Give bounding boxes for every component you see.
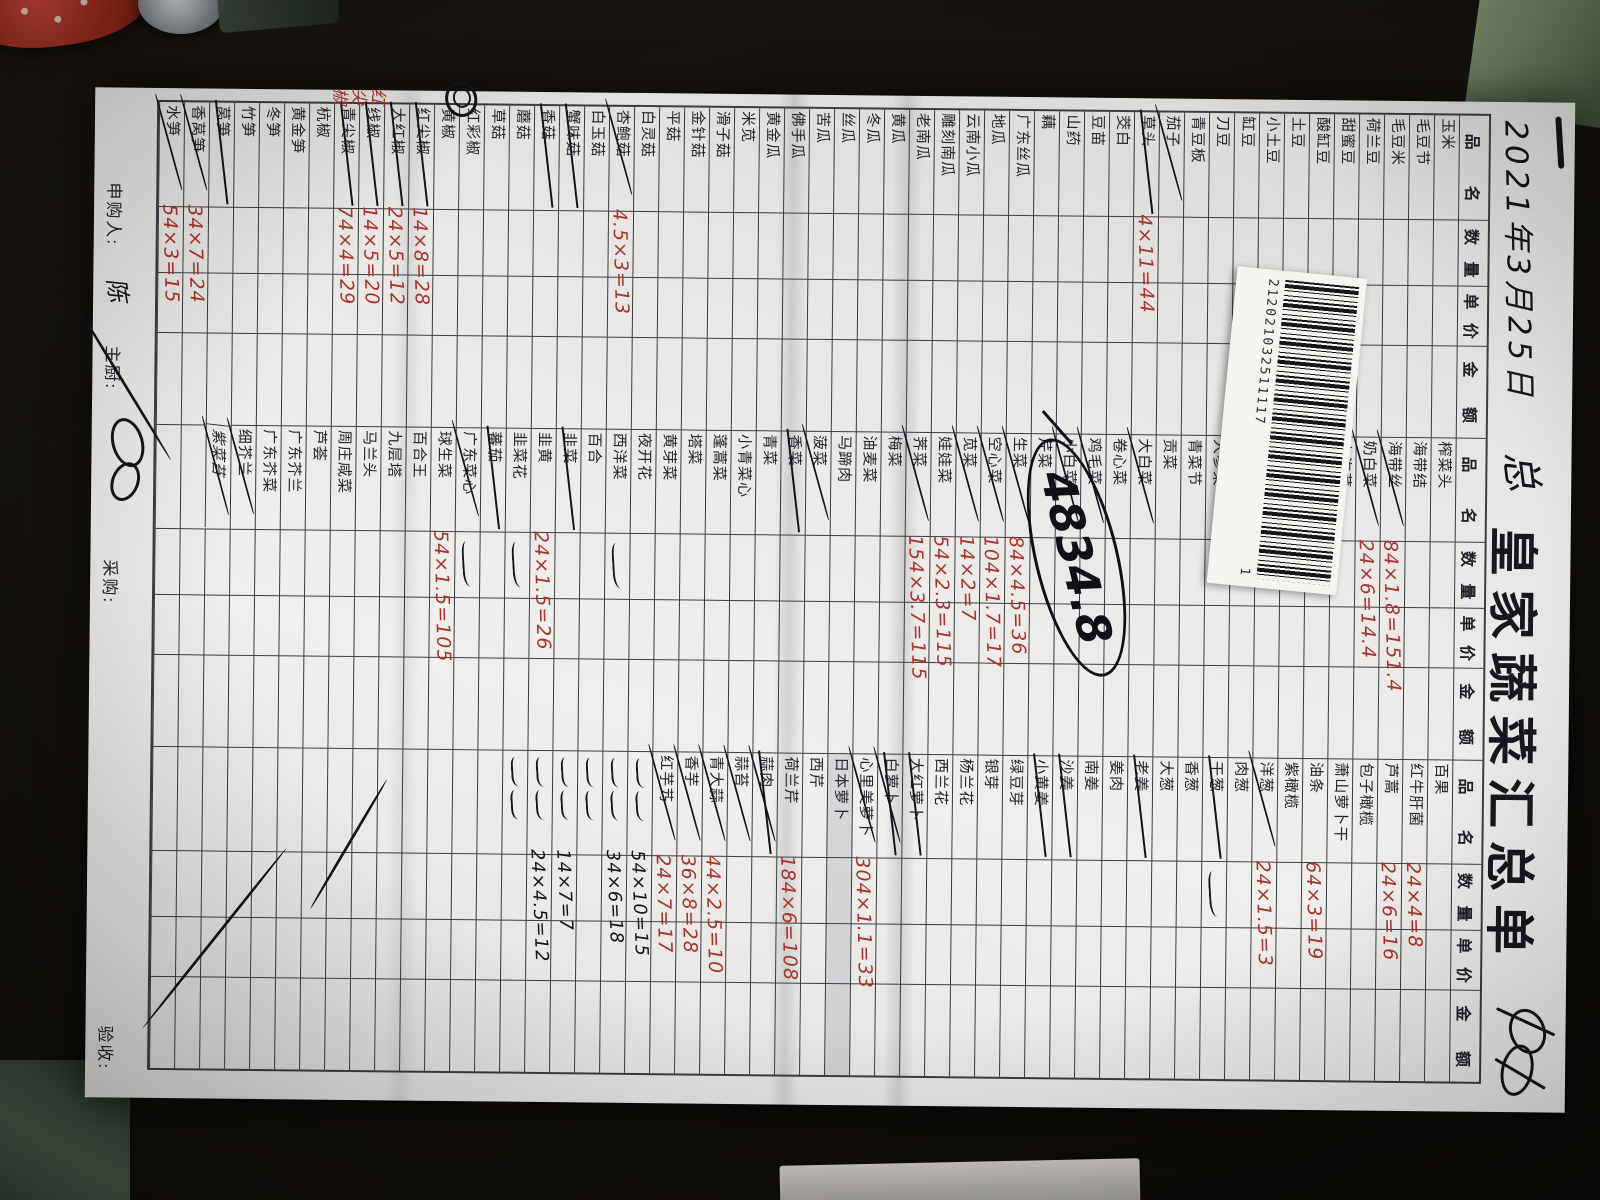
unit-price-cell — [1100, 926, 1126, 986]
amount-cell — [202, 654, 228, 746]
order-table: 品名数量单价金额品名数量单价金额品名数量单价金额玉米榨菜头百果毛豆节海带结红牛肝… — [147, 100, 1491, 1084]
unit-price-cell — [1153, 604, 1179, 664]
unit-price-cell — [632, 277, 658, 337]
unit-price-cell — [278, 595, 304, 655]
title-signature-scribble — [1483, 1002, 1564, 1113]
unit-price-cell — [475, 919, 501, 979]
item-name-cell: 白灵菇 — [633, 107, 659, 211]
red-ink-calculation: 184×6=108 — [775, 855, 802, 981]
amount-cell — [249, 977, 275, 1069]
quantity-cell — [1426, 863, 1452, 929]
unit-price-cell — [678, 599, 704, 659]
item-name-cell: 毛豆节 — [1408, 115, 1434, 219]
quantity-cell — [1082, 216, 1108, 282]
item-name-cell: 榨菜头 — [1430, 437, 1456, 541]
unit-price-cell — [1000, 925, 1026, 985]
column-header: 金额 — [1452, 668, 1483, 760]
amount-cell — [956, 340, 982, 432]
item-name-cell: 14×7=7 — [551, 750, 577, 854]
item-name-cell: 杭椒 — [308, 104, 334, 208]
quantity-cell — [1051, 859, 1077, 925]
item-name-cell — [201, 746, 227, 850]
unit-price-cell — [1328, 606, 1354, 666]
item-name-cell — [226, 747, 252, 851]
item-name-cell — [276, 747, 302, 851]
amount-cell — [556, 336, 582, 428]
unit-price-cell — [1025, 925, 1051, 985]
quantity-cell — [1107, 216, 1133, 282]
quantity-cell — [654, 533, 680, 599]
unit-price-cell — [575, 920, 601, 980]
item-name-cell: 细芥兰 — [230, 425, 256, 529]
quantity-cell — [1157, 216, 1183, 282]
strikethrough-mark — [486, 426, 500, 530]
quantity-cell — [807, 213, 833, 279]
item-name-cell: 蒜肉 — [751, 752, 777, 856]
item-name-cell: 干葱 — [1201, 757, 1227, 861]
item-name-cell — [251, 747, 277, 851]
unit-price-cell — [1303, 606, 1329, 666]
item-name-cell: 广东芥菜 — [255, 425, 281, 529]
quantity-cell — [801, 857, 827, 923]
red-ink-calculation: 44×2.5=10 — [700, 855, 727, 975]
quantity-cell — [1057, 215, 1083, 281]
amount-cell — [1374, 989, 1400, 1081]
amount-cell — [606, 337, 632, 429]
amount-cell — [1349, 988, 1375, 1080]
quantity-cell — [1357, 219, 1383, 285]
amount-cell — [699, 982, 725, 1074]
amount-cell — [1056, 341, 1082, 433]
column-header: 金额 — [1456, 346, 1487, 438]
unit-price-cell — [453, 597, 479, 657]
quantity-cell — [479, 531, 505, 597]
quantity-cell — [1429, 541, 1455, 607]
amount-cell — [706, 338, 732, 430]
item-name-cell: 苋菜14×2=7 — [955, 432, 981, 536]
requester-label: 申购人: — [103, 182, 129, 246]
item-name-cell: 韭菜花 — [505, 428, 531, 532]
item-name-cell: 佛手瓜 — [783, 108, 809, 212]
unit-price-cell — [957, 280, 983, 340]
item-name-cell: 豆苗 — [1083, 112, 1109, 216]
amount-cell — [974, 985, 1000, 1077]
item-name-cell: 球生菜54×1.5=105 — [430, 427, 456, 531]
unit-price-cell — [457, 275, 483, 335]
item-name-cell: 马蹄肉 — [830, 431, 856, 535]
quantity-cell — [282, 207, 308, 273]
quantity-cell — [704, 534, 730, 600]
item-name-cell: 香葱 — [1176, 757, 1202, 861]
amount-cell — [899, 984, 925, 1076]
amount-cell — [724, 982, 750, 1074]
quantity-cell — [354, 530, 380, 596]
amount-cell — [1027, 663, 1053, 755]
item-name-cell — [301, 747, 327, 851]
amount-cell — [981, 341, 1007, 433]
item-name-cell: 西芹 — [801, 753, 827, 857]
amount-cell — [1074, 986, 1100, 1078]
unit-price-cell — [432, 275, 458, 335]
amount-cell — [1131, 342, 1157, 434]
amount-cell — [781, 338, 807, 430]
red-ink-calculation: 24×6=14.4 — [1354, 539, 1381, 659]
quantity-cell — [579, 532, 605, 598]
quantity-cell — [1326, 862, 1352, 928]
item-name-cell: 夜开花 — [630, 429, 656, 533]
red-ink-calculation: 64×3=19 — [1301, 861, 1327, 961]
amount-cell — [931, 340, 957, 432]
red-ink-calculation: 24×6=16 — [1376, 862, 1402, 962]
amount-cell — [906, 340, 932, 432]
unit-price-cell — [225, 917, 251, 977]
requester-signature: 陈 — [100, 275, 138, 306]
order-sheet: 2021年3月25日 总 皇家蔬菜汇总单 品名数量单价金额品名数量单价金额品名数… — [85, 87, 1575, 1112]
quantity-cell — [379, 530, 405, 596]
amount-cell — [402, 657, 428, 749]
amount-cell — [356, 334, 382, 426]
amount-cell — [752, 660, 778, 752]
amount-cell — [1431, 345, 1457, 437]
quantity-cell — [957, 214, 983, 280]
quantity-cell — [1007, 215, 1033, 281]
item-name-cell: 藕 — [1033, 111, 1059, 215]
unit-price-cell — [307, 274, 333, 334]
glass-edge-prop — [216, 0, 340, 33]
item-name-cell: 34×6=18 — [601, 751, 627, 855]
amount-cell — [1299, 988, 1325, 1080]
item-name-cell: 塔菜 — [680, 429, 706, 533]
quantity-cell — [279, 529, 305, 595]
unit-price-cell — [203, 594, 229, 654]
amount-cell — [431, 335, 457, 427]
item-name-cell: 南姜 — [1076, 756, 1102, 860]
amount-cell — [577, 658, 603, 750]
amount-cell — [877, 662, 903, 754]
item-name-cell — [476, 749, 502, 853]
amount-cell — [502, 658, 528, 750]
unit-price-cell — [1157, 282, 1183, 342]
unit-price-cell — [807, 279, 833, 339]
amount-cell — [677, 659, 703, 751]
amount-cell — [506, 336, 532, 428]
item-name-cell: 蟹味菇 — [558, 106, 584, 210]
quantity-cell — [1026, 859, 1052, 925]
quantity-cell — [982, 215, 1008, 281]
quantity-cell — [1001, 859, 1027, 925]
unit-price-cell — [932, 280, 958, 340]
unit-price-cell — [153, 594, 179, 654]
unit-price-cell — [532, 276, 558, 336]
quantity-cell — [532, 210, 558, 276]
item-name-cell: 紫橄榄 — [1276, 758, 1302, 862]
item-name-cell: 苦瓜 — [808, 109, 834, 213]
quantity-cell — [179, 528, 205, 594]
unit-price-cell — [782, 278, 808, 338]
quantity-cell — [276, 851, 302, 917]
amount-cell — [702, 660, 728, 752]
amount-cell — [856, 339, 882, 431]
unit-price-cell — [1007, 281, 1033, 341]
unit-price-cell — [1082, 282, 1108, 342]
buyer-label: 采购: — [99, 559, 124, 604]
red-ink-calculation: 84×4.5=36 — [1004, 536, 1031, 656]
unit-price-cell — [982, 281, 1008, 341]
amount-cell — [477, 657, 503, 749]
amount-cell — [656, 337, 682, 429]
red-ink-calculation: 34×7=24 — [182, 204, 208, 304]
item-name-cell: 蓬蒿菜 — [705, 430, 731, 534]
unit-price-cell — [657, 277, 683, 337]
amount-cell — [252, 655, 278, 747]
unit-price-cell — [703, 600, 729, 660]
red-ink-calculation: 24×1.5=26 — [529, 531, 556, 651]
item-name-cell: 杨兰花 — [951, 754, 977, 858]
unit-price-cell — [778, 600, 804, 660]
amount-cell — [1152, 664, 1178, 756]
unit-price-cell — [803, 601, 829, 661]
quantity-cell — [1207, 217, 1233, 283]
amount-cell — [1124, 986, 1150, 1078]
item-name-cell: 雕刻南瓜 — [933, 110, 959, 214]
unit-price-cell — [1403, 607, 1429, 667]
quantity-cell — [207, 206, 233, 272]
item-name-cell: 百果 — [1426, 759, 1452, 863]
check-slash-mark — [155, 94, 183, 191]
amount-cell — [1156, 342, 1182, 434]
amount-cell — [574, 980, 600, 1072]
unit-price-cell — [1200, 927, 1226, 987]
red-margin-note: 红尖椒 — [330, 82, 387, 108]
item-name-cell: 奶白菜24×6=14.4 — [1355, 436, 1381, 540]
red-ink-calculation: 24×1.5=3 — [1250, 860, 1277, 967]
column-header: 数量 — [1454, 542, 1485, 608]
amount-cell — [406, 335, 432, 427]
item-name-cell: 百合 — [580, 428, 606, 532]
item-name-cell: 老姜 — [1126, 756, 1152, 860]
item-name-cell: 平菇 — [658, 107, 684, 211]
item-name-cell: 玉米 — [1433, 115, 1459, 219]
black-ink-calculation: 34×6=18 — [600, 849, 628, 944]
quantity-cell — [1382, 219, 1408, 285]
quantity-cell — [582, 210, 608, 276]
item-name-cell: 红牛肝菌24×4=8 — [1401, 759, 1427, 863]
item-name-cell: 甜蜜豆 — [1333, 114, 1359, 218]
strikethrough-mark — [390, 102, 404, 207]
quantity-cell — [401, 853, 427, 919]
amount-cell — [499, 980, 525, 1072]
amount-cell — [806, 339, 832, 431]
amount-cell — [1199, 987, 1225, 1079]
unit-price-cell — [1253, 605, 1279, 665]
amount-cell — [627, 659, 653, 751]
amount-cell — [399, 979, 425, 1071]
item-name-cell — [180, 424, 206, 528]
item-name-cell: 蘑菇 — [508, 106, 534, 210]
amount-cell — [481, 335, 507, 427]
amount-cell — [524, 980, 550, 1072]
item-name-cell: 九层塔 — [380, 426, 406, 530]
red-ink-calculation: 104×1.7=17 — [978, 535, 1005, 668]
amount-cell — [1352, 666, 1378, 758]
red-ink-calculation: 54×1.5=105 — [428, 530, 455, 663]
amount-cell — [331, 334, 357, 426]
quantity-cell — [307, 208, 333, 274]
unit-price-cell — [478, 597, 504, 657]
amount-cell — [924, 984, 950, 1076]
red-ink-calculation: 14×5=20 — [357, 206, 383, 306]
item-name-cell: 丝瓜 — [833, 109, 859, 213]
item-name-cell — [376, 748, 402, 852]
item-name-cell: 老南瓜 — [908, 110, 934, 214]
amount-cell — [1324, 988, 1350, 1080]
item-name-cell: 小土豆 — [1258, 113, 1284, 217]
quantity-cell — [632, 211, 658, 277]
item-name-cell: 绿豆芽 — [1001, 755, 1027, 859]
amount-cell — [231, 333, 257, 425]
quantity-cell — [1351, 862, 1377, 928]
unit-price-cell — [207, 272, 233, 332]
unit-price-cell — [1125, 926, 1151, 986]
amount-cell — [727, 660, 753, 752]
unit-price-cell — [328, 596, 354, 656]
quantity-cell — [726, 856, 752, 922]
unit-price-cell — [557, 276, 583, 336]
unit-price-cell — [732, 278, 758, 338]
amount-cell — [874, 983, 900, 1075]
amount-cell — [977, 663, 1003, 755]
amount-cell — [599, 981, 625, 1073]
unit-price-cell — [403, 597, 429, 657]
amount-cell — [1081, 342, 1107, 434]
quantity-cell — [879, 536, 905, 602]
footer-row: 申购人: 陈 主厨: 采购: 验收: — [85, 87, 136, 1097]
quantity-cell — [1332, 218, 1358, 284]
quantity-cell — [832, 213, 858, 279]
amount-cell — [1227, 665, 1253, 757]
amount-cell — [602, 659, 628, 751]
unit-price-cell — [1207, 283, 1233, 343]
amount-cell — [152, 654, 178, 746]
red-ink-calculation: 24×4=8 — [1401, 862, 1427, 949]
quantity-cell — [629, 533, 655, 599]
unit-price-cell — [1325, 928, 1351, 988]
column-header: 品名 — [1451, 760, 1482, 864]
unit-price-cell — [282, 273, 308, 333]
amount-cell — [1424, 989, 1450, 1081]
strikethrough-mark — [561, 426, 575, 530]
amount-cell — [1277, 666, 1303, 758]
item-name-cell: 小黄姜 — [1026, 755, 1052, 859]
quantity-cell — [1126, 860, 1152, 926]
unit-price-cell — [1107, 282, 1133, 342]
item-name-cell: 草头4×11=44 — [1133, 112, 1159, 216]
quantity-cell — [732, 212, 758, 278]
black-ink-calculation: 24×4.5=12 — [524, 849, 553, 964]
amount-cell — [1174, 987, 1200, 1079]
quantity-cell — [854, 535, 880, 601]
unit-price-cell — [482, 275, 508, 335]
item-name-cell: 青菜 — [755, 430, 781, 534]
amount-cell — [731, 338, 757, 430]
item-name-cell: 大白菜 — [1130, 434, 1156, 538]
amount-cell — [306, 334, 332, 426]
quantity-cell — [426, 853, 452, 919]
quantity-cell — [254, 529, 280, 595]
amount-cell — [1406, 345, 1432, 437]
item-name-cell: 小青菜心 — [730, 430, 756, 534]
quantity-cell — [229, 529, 255, 595]
quantity-cell — [351, 852, 377, 918]
amount-cell — [649, 981, 675, 1073]
unit-price-cell — [828, 601, 854, 661]
item-name-cell: 荠菜154×3.7=115 — [905, 432, 931, 536]
item-name-cell: 紫菜苔 — [205, 423, 231, 530]
item-name-cell: 草菇 — [483, 105, 509, 209]
item-name-cell: 心里美萝卜304×1.1=33 — [851, 753, 877, 857]
amount-cell — [349, 978, 375, 1070]
unit-price-cell — [975, 925, 1001, 985]
amount-cell — [277, 655, 303, 747]
unit-price-cell — [1428, 607, 1454, 667]
item-name-cell: 青大蒜44×2.5=10 — [701, 752, 727, 856]
unit-price-cell — [275, 917, 301, 977]
unit-price-cell — [325, 918, 351, 978]
item-name-cell: 酸缸豆 — [1308, 114, 1334, 218]
amount-cell — [352, 656, 378, 748]
amount-cell — [824, 983, 850, 1075]
quantity-cell — [679, 533, 705, 599]
amount-cell — [1399, 989, 1425, 1081]
item-name-cell: 红彩椒 — [458, 105, 484, 209]
quantity-cell — [451, 853, 477, 919]
amount-cell — [549, 980, 575, 1072]
strikethrough-mark — [1140, 110, 1154, 215]
item-name-cell: 大红椒24×5=12 — [383, 104, 409, 208]
quantity-cell — [329, 530, 355, 596]
quantity-cell — [1276, 862, 1302, 928]
strikethrough-mark — [908, 752, 922, 856]
amount-cell — [374, 978, 400, 1070]
item-name-cell: 红芋艿24×7=17 — [651, 751, 677, 855]
quantity-cell — [907, 214, 933, 280]
unit-price-cell — [300, 917, 326, 977]
column-header: 单价 — [1450, 930, 1481, 990]
quantity-cell — [951, 858, 977, 924]
strikethrough-mark — [365, 101, 379, 206]
item-name-cell: 青豆板 — [1183, 113, 1209, 217]
quantity-cell — [176, 850, 202, 916]
unit-price-cell — [882, 280, 908, 340]
strikethrough-mark — [786, 429, 800, 533]
pen-dash-mark — [1555, 116, 1564, 168]
unit-price-cell — [750, 922, 776, 982]
amount-cell — [452, 657, 478, 749]
unit-price-cell — [907, 280, 933, 340]
item-name-cell: 54×10=15 — [626, 751, 652, 855]
item-name-cell: 青尖椒74×4=29 — [333, 104, 359, 208]
item-name-cell: 毛豆米 — [1383, 115, 1409, 219]
amount-cell — [1252, 665, 1278, 757]
amount-cell — [274, 977, 300, 1069]
red-ink-calculation: 304×1.1=33 — [850, 856, 877, 989]
quantity-cell — [1076, 860, 1102, 926]
item-name-cell: 刀豆 — [1208, 113, 1234, 217]
unit-price-cell — [1432, 285, 1458, 345]
item-name-cell: 茭白 — [1108, 112, 1134, 216]
unit-price-cell — [757, 278, 783, 338]
item-name-cell: 油麦菜 — [855, 431, 881, 535]
